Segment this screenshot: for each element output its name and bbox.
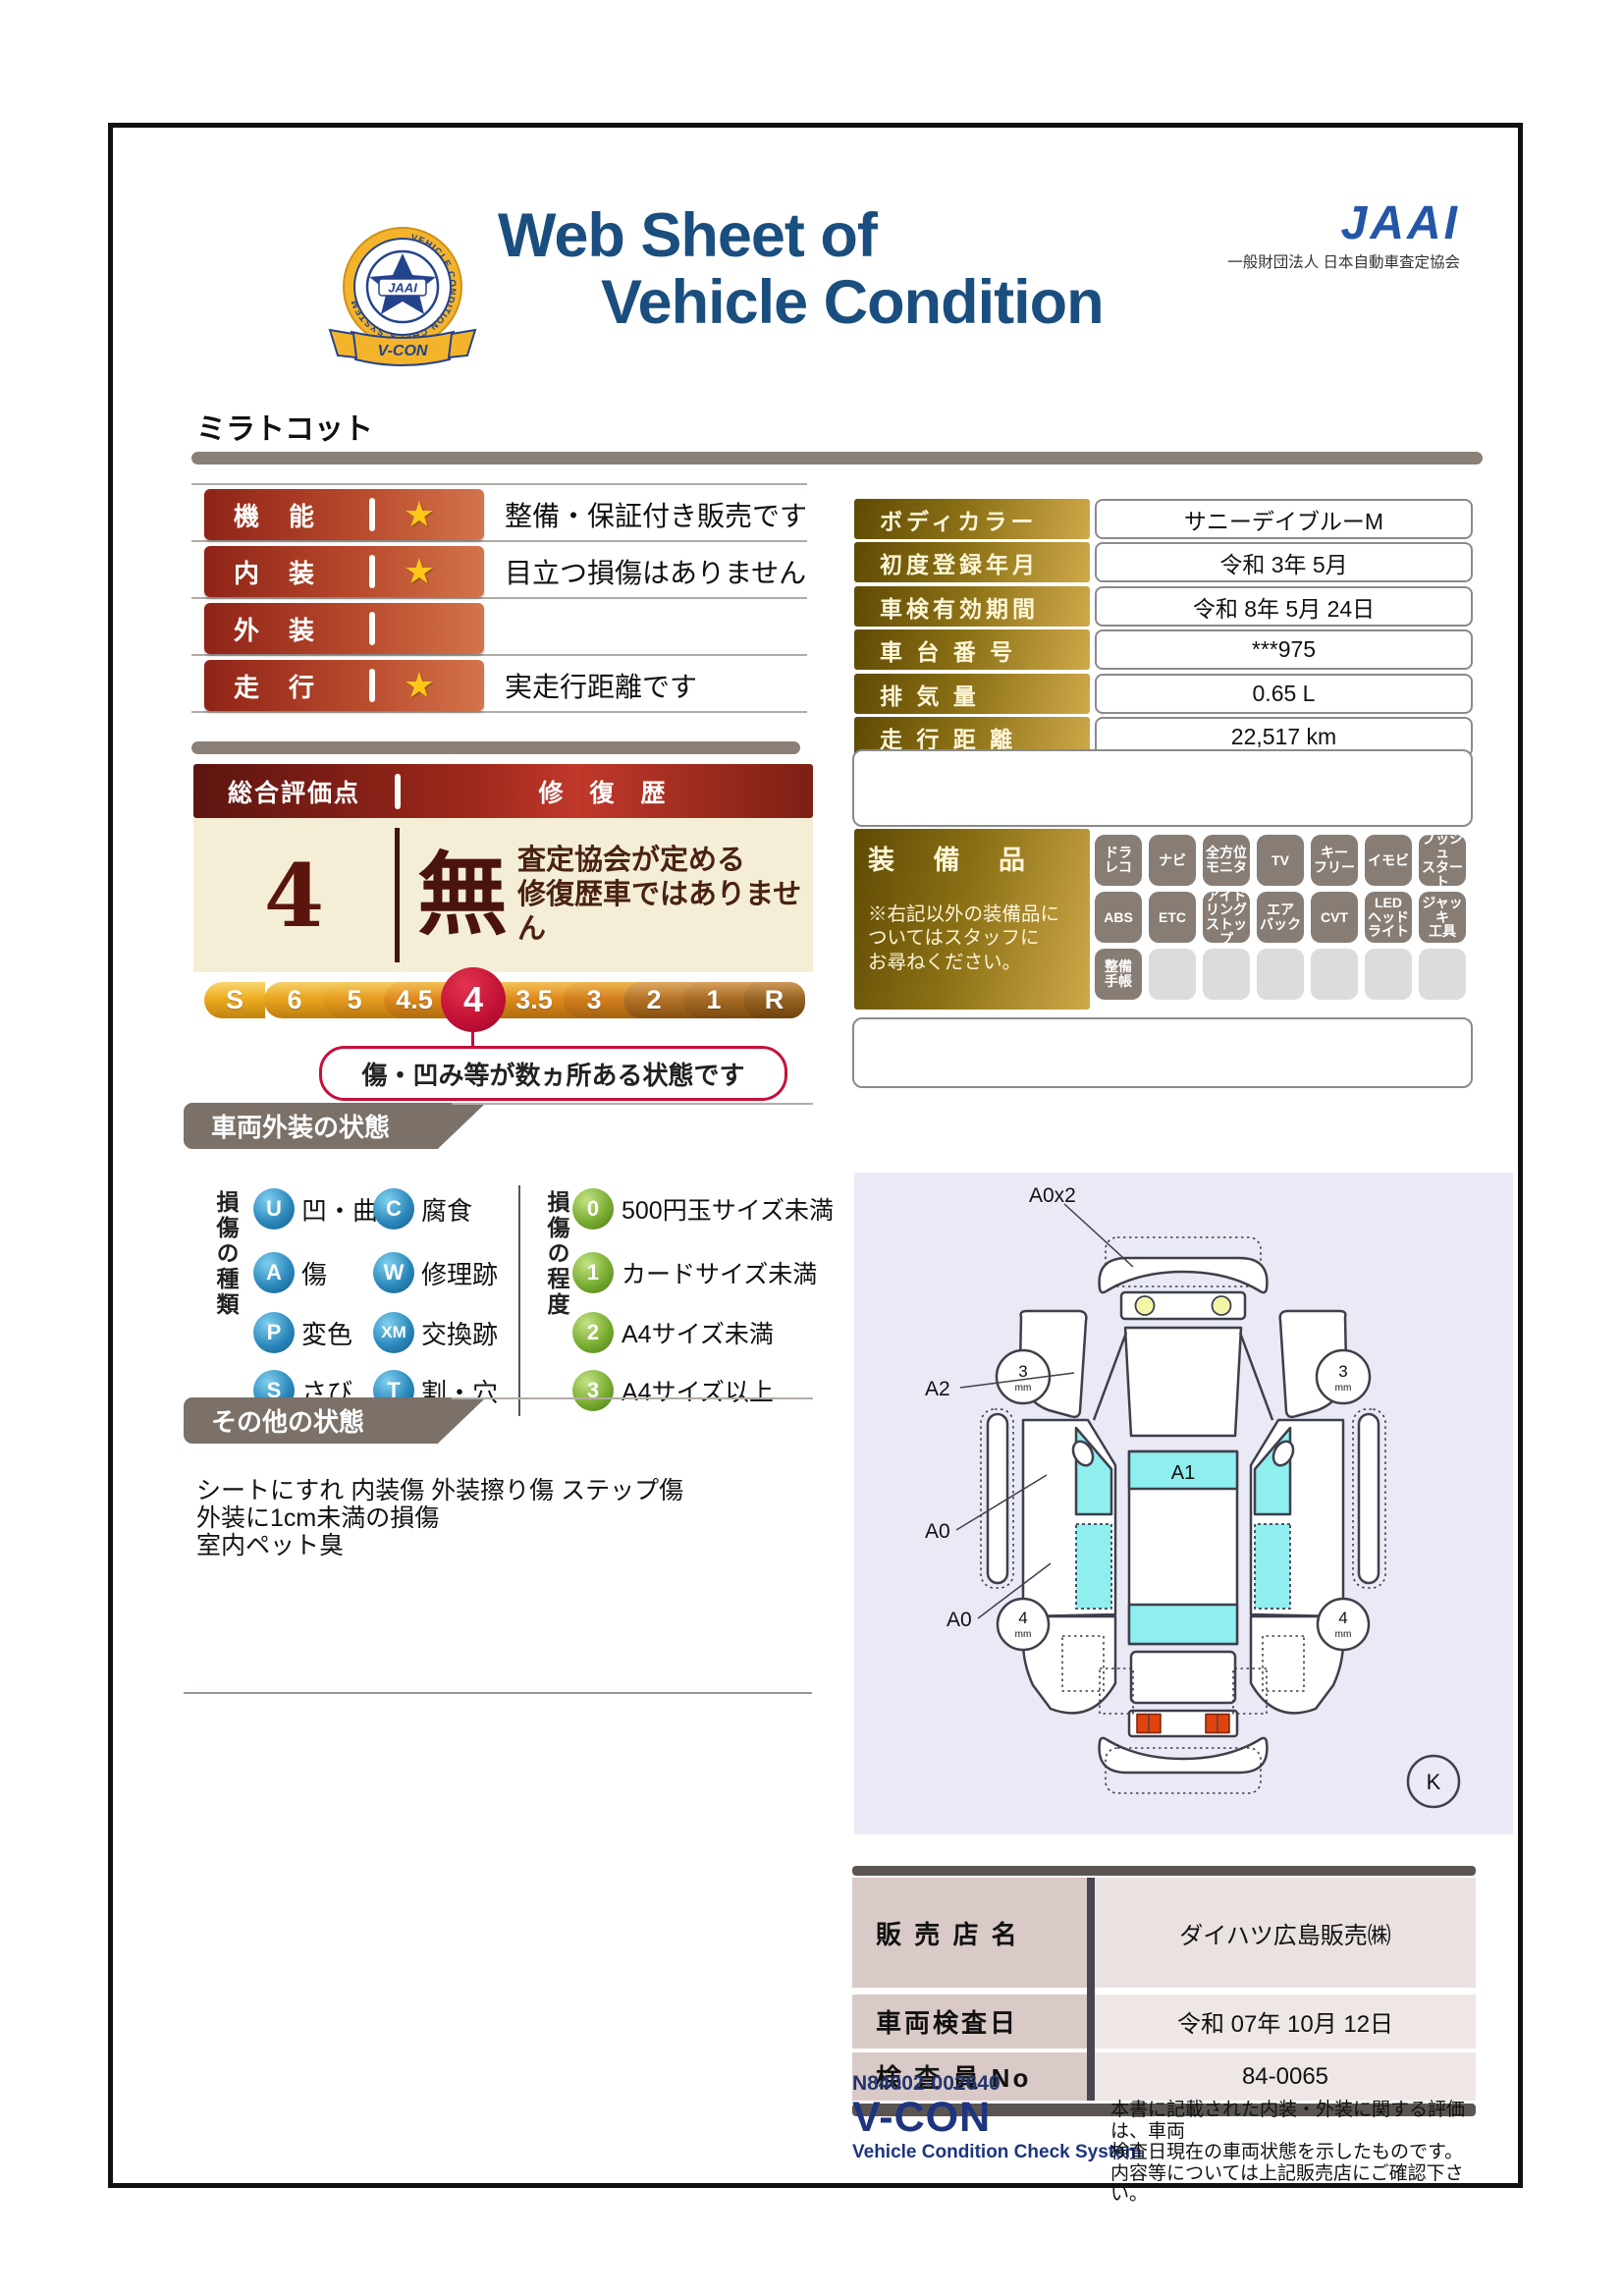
damage-degree-3-icon: 3 [572, 1370, 614, 1411]
divider-bar [191, 741, 800, 754]
equipment-grid: ドラ レコ ナビ 全方位 モニタ TV キー フリー イモビ プッシュ スタート… [1095, 829, 1473, 1010]
equip-push-start: プッシュ スタート [1419, 835, 1466, 886]
equipment-panel-label: 装 備 品 ※右記以外の装備品に ついてはスタッフに お尋ねください。 [854, 829, 1090, 1010]
repair-history-description: 査定協会が定める 修復歴車ではありません [517, 844, 813, 946]
divider [191, 597, 807, 599]
damage-degree-label: A4サイズ以上 [622, 1370, 774, 1411]
damage-type-label: 腐食 [421, 1188, 472, 1230]
info-value-body-color: サニーデイブルーM [1095, 499, 1473, 539]
svg-text:mm: mm [1335, 1629, 1352, 1640]
info-value-inspection-valid: 令和 8年 5月 24日 [1095, 586, 1473, 627]
info-label: 初度登録年月 [854, 542, 1090, 582]
diagram-fender-damage-label: A2 [925, 1378, 950, 1400]
inspection-date-value: 令和 07年 10月 12日 [1095, 1995, 1476, 2049]
damage-type-a-icon: A [253, 1252, 295, 1293]
equip-dashcam: ドラ レコ [1095, 835, 1142, 886]
info-label: ボディカラー [854, 499, 1090, 539]
damage-degree-2-icon: 2 [572, 1312, 614, 1353]
damage-type-c-icon: C [373, 1188, 414, 1230]
star-icon: ★ [375, 494, 463, 535]
damage-degree-0-icon: 0 [572, 1188, 614, 1230]
section-tab-exterior: 車両外装の状態 [184, 1103, 486, 1149]
vcon-wordmark-icon: V-CON [852, 2094, 991, 2142]
equip-abs: ABS [1095, 892, 1142, 943]
svg-text:mm: mm [1335, 1383, 1352, 1394]
rating-row-exterior: 外 装 [204, 603, 484, 654]
vehicle-model-name: ミラトコット [196, 405, 373, 448]
damage-type-label: 交換跡 [421, 1312, 498, 1353]
equip-airbag: エア バック [1257, 892, 1304, 943]
svg-text:JAAI: JAAI [388, 281, 417, 296]
page-title-line2: Vehicle Condition [601, 267, 1104, 338]
callout-leader-line [471, 1031, 474, 1048]
jaai-organization: 一般財団法人 日本自動車査定協会 [1183, 250, 1460, 272]
equip-empty-slot [1203, 949, 1250, 1000]
svg-text:mm: mm [1015, 1383, 1032, 1394]
overall-score-body: 4 無 査定協会が定める 修復歴車ではありません [193, 818, 813, 972]
equip-navi: ナビ [1149, 835, 1196, 886]
svg-text:V-CON: V-CON [378, 343, 428, 359]
info-label: 排 気 量 [854, 674, 1090, 714]
damage-type-label: 変色 [301, 1312, 352, 1353]
equip-immobilizer: イモビ [1365, 835, 1412, 886]
inspector-no-value: 84-0065 [1095, 2052, 1476, 2101]
rating-label: 外 装 [234, 611, 361, 647]
info-label: 車 台 番 号 [854, 629, 1090, 670]
damage-type-xm-icon: XM [373, 1312, 414, 1353]
rating-description [505, 603, 819, 654]
tire-depth-front-left: 3 [1018, 1362, 1027, 1381]
damage-diagram: A0x2 A2 A0 A0 A1 K 3 mm 3 mm 4 mm 4 mm [854, 1173, 1513, 1834]
rating-row-interior: 内 装 ★ [204, 546, 484, 597]
divider [191, 483, 807, 485]
diagram-door-damage-label: A0 [925, 1520, 950, 1543]
rating-row-mileage: 走 行 ★ [204, 660, 484, 711]
grade-seg-r: R [743, 982, 805, 1018]
divider [191, 654, 807, 656]
dealer-name-value: ダイハツ広島販売㈱ [1095, 1878, 1476, 1988]
diagram-roof-damage-label: A1 [1171, 1462, 1195, 1484]
selected-grade-badge: 4 [441, 967, 506, 1032]
star-icon: ★ [375, 551, 463, 592]
tire-depth-rear-right: 4 [1338, 1609, 1347, 1627]
divider [1087, 1878, 1095, 2101]
inspection-date-label: 車両検査日 [852, 1995, 1087, 2049]
divider [518, 1185, 520, 1416]
diagram-key-label: K [1427, 1770, 1441, 1794]
repair-history-title: 修 復 歴 [401, 774, 813, 809]
damage-type-u-icon: U [253, 1188, 295, 1230]
divider [191, 540, 807, 542]
divider [191, 711, 807, 713]
equip-cvt: CVT [1311, 892, 1358, 943]
tire-depth-front-right: 3 [1338, 1362, 1347, 1381]
damage-type-label: 修理跡 [421, 1252, 498, 1293]
equip-tv: TV [1257, 835, 1304, 886]
equip-around-monitor: 全方位 モニタ [1203, 835, 1250, 886]
damage-type-w-icon: W [373, 1252, 414, 1293]
rating-label: 走 行 [234, 668, 361, 704]
empty-remarks-box [852, 749, 1473, 827]
disclaimer-text: 本書に記載された内装・外装に関する評価は、車両 検査日現在の車両状態を示したもの… [1110, 2100, 1484, 2206]
diagram-front-damage-label: A0x2 [1029, 1184, 1076, 1207]
equip-etc: ETC [1149, 892, 1196, 943]
damage-type-axis-label: 損傷の種類 [209, 1190, 243, 1318]
page-title-line1: Web Sheet of [498, 200, 877, 271]
damage-degree-axis-label: 損傷の程度 [540, 1190, 573, 1318]
vcon-badge-icon: VEHICLE CONDITION CHECK SYSTEM JAAI V-CO… [314, 206, 491, 383]
overall-score-title: 総合評価点 [193, 774, 395, 809]
damage-type-label: 傷 [301, 1252, 327, 1293]
divider-bar [191, 452, 1483, 465]
divider [184, 1692, 812, 1694]
rating-label: 内 装 [234, 554, 361, 590]
star-icon: ★ [375, 665, 463, 706]
info-label: 車検有効期間 [854, 586, 1090, 627]
info-value-first-registration: 令和 3年 5月 [1095, 542, 1473, 582]
divider [452, 1397, 813, 1399]
divider-bar [852, 1866, 1476, 1876]
damage-degree-label: 500円玉サイズ未満 [622, 1188, 834, 1230]
rating-label: 機 能 [234, 497, 361, 533]
info-value-chassis-number: ***975 [1095, 629, 1473, 670]
info-value-displacement: 0.65 L [1095, 674, 1473, 714]
svg-text:mm: mm [1015, 1629, 1032, 1640]
damage-type-p-icon: P [253, 1312, 295, 1353]
equip-empty-slot [1419, 949, 1466, 1000]
other-condition-notes: シートにすれ 内装傷 外装擦り傷 ステップ傷 外装に1cm未満の損傷 室内ペット… [196, 1477, 683, 1559]
divider [369, 612, 375, 645]
equip-empty-slot [1365, 949, 1412, 1000]
equip-jack-tools: ジャッキ 工具 [1419, 892, 1466, 943]
divider [452, 1103, 813, 1105]
diagram-rear-door-damage-label: A0 [947, 1609, 972, 1631]
rating-description: 実走行距離です [505, 660, 819, 711]
equip-led-headlight: LED ヘッド ライト [1365, 892, 1412, 943]
equip-empty-slot [1311, 949, 1358, 1000]
dealer-name-label: 販 売 店 名 [852, 1878, 1087, 1988]
equip-maintenance-book: 整備 手帳 [1095, 949, 1142, 1000]
damage-degree-label: A4サイズ未満 [622, 1312, 774, 1353]
overall-score-header: 総合評価点 修 復 歴 [193, 764, 813, 818]
equip-empty-slot [1257, 949, 1304, 1000]
equipment-note: ※右記以外の装備品に ついてはスタッフに お尋ねください。 [868, 902, 1090, 974]
rating-description: 整備・保証付き販売です [505, 489, 819, 540]
tire-depth-rear-left: 4 [1018, 1609, 1027, 1627]
rating-row-function: 機 能 ★ [204, 489, 484, 540]
rating-description: 目立つ損傷はありません [505, 546, 819, 597]
equip-keyfree: キー フリー [1311, 835, 1358, 886]
jaai-logo: JAAI 一般財団法人 日本自動車査定協会 [1183, 200, 1460, 272]
empty-remarks-box [852, 1017, 1473, 1088]
jaai-wordmark-icon: JAAI [1183, 200, 1460, 247]
vcon-subtitle: Vehicle Condition Check System [852, 2142, 1142, 2163]
equip-idling-stop: アイド リング ストップ [1203, 892, 1250, 943]
sheet-serial-number: N84002-002640 [852, 2072, 1001, 2096]
equip-empty-slot [1149, 949, 1196, 1000]
damage-degree-1-icon: 1 [572, 1252, 614, 1293]
equipment-title: 装 備 品 [868, 839, 1090, 877]
repair-history-none: 無 [417, 850, 508, 941]
sheet-page: VEHICLE CONDITION CHECK SYSTEM JAAI V-CO… [108, 123, 1523, 2188]
grade-callout: 傷・凹み等が数ヵ所ある状態です [319, 1046, 787, 1101]
damage-degree-label: カードサイズ未満 [622, 1252, 817, 1293]
overall-score-value: 4 [193, 818, 395, 972]
section-tab-other: その他の状態 [184, 1397, 486, 1444]
grade-seg-s: S [204, 982, 265, 1018]
damage-type-label: 凹・曲 [301, 1188, 378, 1230]
